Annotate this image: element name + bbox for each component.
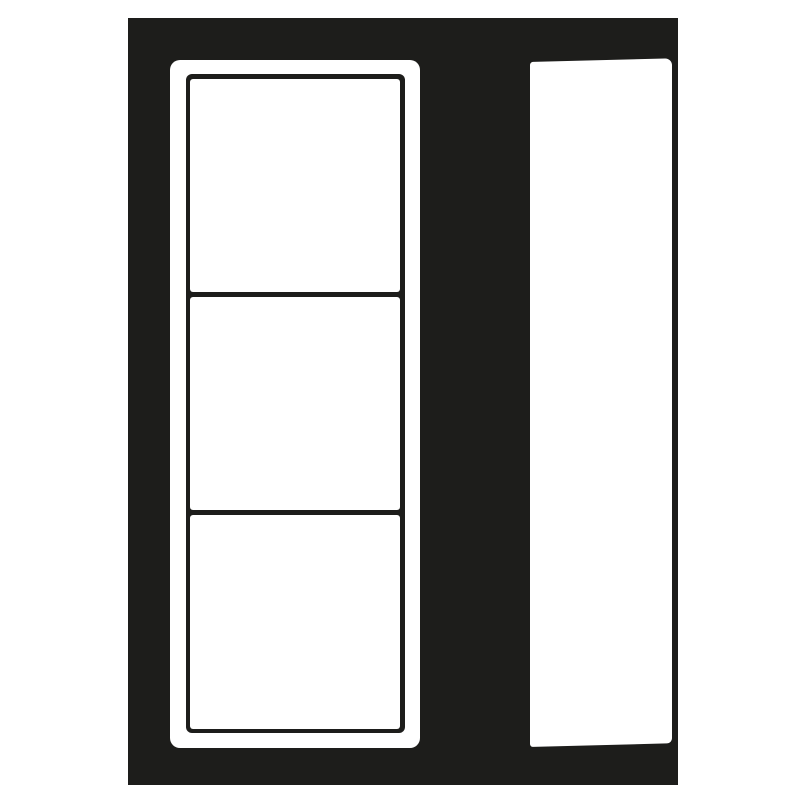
- frame-1: [190, 79, 400, 293]
- slanted-panel: [530, 58, 672, 747]
- frame-2: [190, 297, 400, 511]
- frame-strip-panel: [170, 60, 420, 748]
- frame-3: [190, 515, 400, 729]
- frame-grid: [186, 74, 405, 733]
- pictogram: [0, 0, 800, 800]
